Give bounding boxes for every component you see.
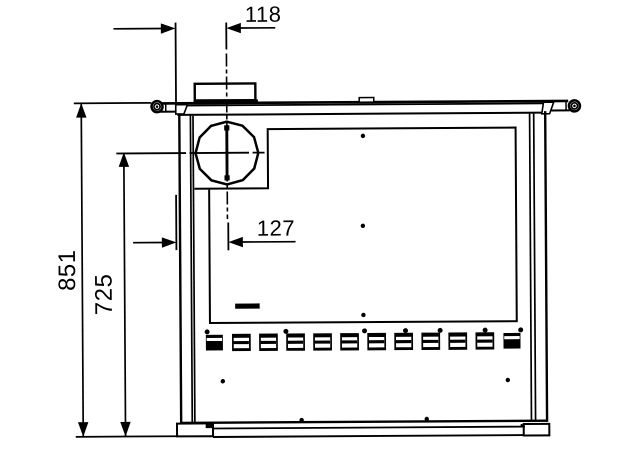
svg-text:127: 127: [257, 216, 295, 241]
svg-text:118: 118: [245, 2, 282, 27]
svg-text:725: 725: [91, 274, 118, 316]
svg-text:851: 851: [54, 249, 81, 291]
